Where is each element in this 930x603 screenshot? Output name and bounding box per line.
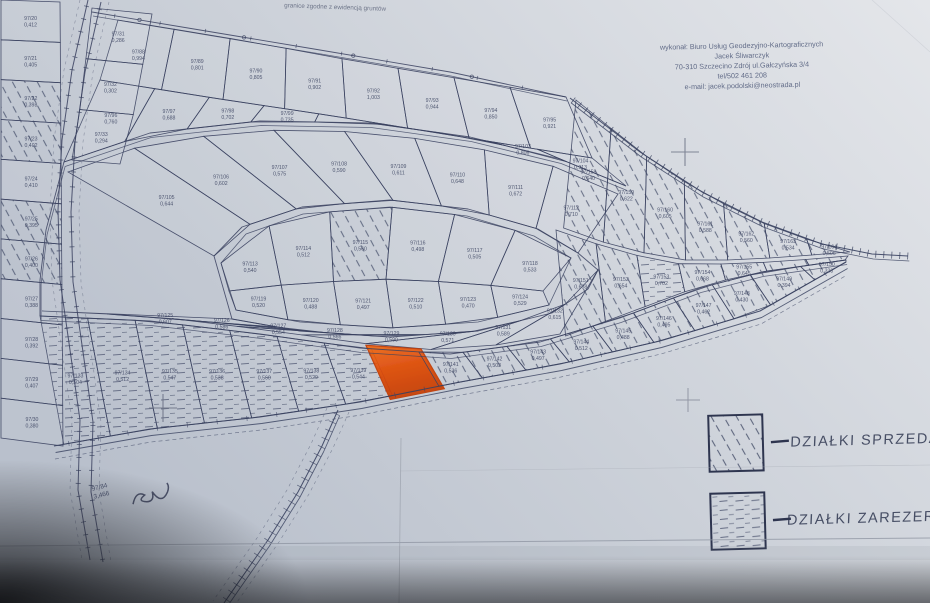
- parcel-id: 97/162: [738, 231, 754, 237]
- parcel-area: 0,806: [516, 151, 529, 157]
- parcel-area: 0,611: [392, 171, 405, 177]
- parcel-area: 0,470: [462, 304, 475, 310]
- parcel-id: 97/111: [508, 185, 523, 191]
- parcel-area: 0,512: [297, 253, 310, 259]
- parcel-id: 97/31: [112, 31, 125, 37]
- parcel-area: 0,462: [697, 310, 710, 316]
- parcel-id: 97/161: [697, 221, 713, 227]
- parcel-id: 97/160: [657, 208, 673, 214]
- parcel-area: 0,589: [497, 331, 510, 337]
- parcel-area: 0,850: [484, 114, 497, 120]
- parcel-area: 0,994: [132, 56, 145, 62]
- parcel-id: 97/152: [613, 277, 629, 283]
- parcel-id: 97/128: [327, 328, 343, 334]
- parcel-area: 0,702: [655, 281, 668, 287]
- parcel-id: 97/88: [132, 50, 145, 56]
- parcel-area: 0,654: [614, 283, 627, 289]
- parcel-id: 97/147: [696, 303, 712, 309]
- parcel-id: 97/25: [25, 217, 38, 223]
- parcel-area: 0,495: [657, 322, 670, 328]
- parcel-area: 0,430: [735, 297, 748, 303]
- parcel-id: 97/108: [331, 161, 347, 167]
- parcel-area: 0,902: [308, 85, 321, 91]
- parcel-id: 97/155: [736, 264, 752, 270]
- parcel-area: 0,286: [112, 38, 125, 44]
- legend-dash: [771, 441, 789, 442]
- parcel-area: 0,534: [782, 245, 795, 251]
- parcel-id: 97/99: [281, 111, 294, 117]
- parcel-id: 97/112: [564, 205, 580, 211]
- parcel-id: 97/158: [581, 170, 597, 176]
- parcel-id: 97/89: [191, 59, 204, 65]
- parcel-id: 97/149: [776, 277, 792, 283]
- parcel-area: 0,801: [191, 66, 204, 72]
- parcel-id: 97/28: [25, 337, 38, 343]
- parcel-id: 97/32: [104, 82, 117, 88]
- parcel-id: 97/95: [543, 118, 556, 124]
- legend-reserved-swatch: [710, 492, 765, 549]
- parcel-id: 97/113: [242, 261, 258, 267]
- parcel-id: 97/105: [159, 195, 175, 201]
- parcel-area: 0,644: [160, 202, 173, 208]
- parcel-id: 97/124: [512, 295, 528, 301]
- parcel-area: 0,294: [95, 139, 108, 145]
- parcel-area: 0,622: [620, 196, 633, 202]
- parcel-id: 97/131: [495, 325, 511, 331]
- parcel-id: 97/104: [573, 159, 589, 165]
- parcel-area: 0,388: [25, 303, 38, 309]
- parcel-area: 0,533: [523, 268, 536, 274]
- parcel-id: 97/91: [308, 78, 321, 84]
- parcel-area: 0,488: [304, 304, 317, 310]
- parcel-area: 0,338: [820, 269, 833, 275]
- parcel-id: 97/106: [213, 174, 229, 180]
- parcel-id: 97/22: [24, 96, 37, 102]
- parcel-id: 97/132: [547, 308, 563, 314]
- parcel-id: 97/121: [355, 298, 371, 304]
- parcel-area: 0,510: [409, 305, 422, 311]
- parcel-area: 0,402: [24, 143, 37, 149]
- parcel-id: 97/127: [270, 323, 286, 329]
- parcel-id: 97/151: [573, 278, 589, 284]
- parcel-area: 1,003: [367, 95, 380, 101]
- parcel-id: 97/33: [95, 132, 108, 138]
- parcel-area: 0,497: [357, 305, 370, 311]
- parcel-id: 97/103: [515, 144, 531, 150]
- cadastral-map-canvas: 97/880,99497/890,80197/900,80597/910,902…: [0, 0, 930, 603]
- parcel-id: 97/92: [367, 88, 380, 94]
- parcel-id: 97/144: [573, 340, 589, 346]
- parcel-id: 97/154: [695, 270, 711, 276]
- parcel-area: 0,398: [24, 103, 37, 109]
- parcel-id: 97/122: [408, 298, 424, 304]
- parcel-id: 97/20: [24, 16, 37, 22]
- parcel-area: 0,488: [617, 335, 630, 341]
- parcel-area: 0,688: [574, 284, 587, 290]
- parcel-area: 0,602: [215, 181, 228, 187]
- parcel-id: 97/117: [467, 248, 483, 254]
- parcel-id: 97/115: [353, 240, 369, 246]
- parcel-id: 97/129: [383, 331, 399, 337]
- surveyor-info: wykonał: Biuro Usług Geodezyjno-Kartogra…: [659, 39, 824, 91]
- parcel-area: 0,554: [272, 330, 285, 336]
- parcel-area: 0,302: [104, 88, 117, 94]
- parcel-id: 97/98: [221, 108, 234, 114]
- parcel-id: 97/150: [819, 262, 835, 268]
- parcel-id: 97/107: [272, 165, 288, 171]
- parcel-area: 0,506: [823, 251, 836, 257]
- parcel-id: 97/97: [162, 109, 175, 115]
- parcel-area: 0,520: [252, 303, 265, 309]
- parcel-area: 0,540: [244, 268, 257, 274]
- parcel-area: 0,412: [24, 23, 37, 29]
- parcel-area: 0,648: [451, 179, 464, 185]
- parcel-id: 97/93: [426, 98, 439, 104]
- parcel-id: 97/164: [821, 245, 837, 251]
- parcel-id: 97/159: [618, 190, 634, 196]
- parcel-id: 97/109: [391, 164, 407, 170]
- parcel-id: 97/110: [450, 172, 466, 178]
- parcel-area: 0,575: [273, 171, 286, 177]
- parcel-id: 97/96: [104, 113, 117, 119]
- parcel-area: 0,735: [281, 117, 294, 123]
- parcel-area: 0,410: [25, 183, 38, 189]
- parcel-area: 0,805: [249, 75, 262, 81]
- parcel-id: 97/27: [25, 297, 38, 303]
- parcel-id: 97/24: [25, 176, 38, 182]
- parcel-area: 0,498: [411, 247, 424, 253]
- parcel-area: 0,566: [328, 334, 341, 340]
- parcel-area: 0,571: [441, 338, 454, 344]
- parcel-area: 0,605: [659, 214, 672, 220]
- parcel-id: 97/148: [734, 291, 750, 297]
- parcel-id: 97/21: [24, 56, 37, 62]
- parcel-id: 97/163: [780, 239, 796, 245]
- parcel-id: 97/123: [460, 297, 476, 303]
- parcel-area: 0,394: [778, 283, 791, 289]
- surveyor-line: tel/502 461 208: [717, 70, 767, 80]
- parcel-id: 97/145: [615, 328, 631, 334]
- parcel-area: 0,586: [215, 325, 228, 331]
- parcel-area: 0,615: [548, 315, 561, 321]
- parcel-id: 97/125: [157, 313, 173, 319]
- legend-sold-swatch: [708, 414, 763, 471]
- parcel-id: 97/146: [656, 316, 672, 322]
- parcel-area: 0,640: [582, 176, 595, 182]
- parcel-area: 0,760: [104, 120, 117, 126]
- parcel-id: 97/120: [303, 298, 319, 304]
- parcel-area: 0,529: [514, 301, 527, 307]
- parcel-area: 0,607: [159, 319, 172, 325]
- parcel-area: 0,588: [699, 228, 712, 234]
- parcel-area: 0,688: [162, 116, 175, 122]
- parcel-area: 0,672: [509, 191, 522, 197]
- parcel-id: 97/116: [410, 241, 426, 247]
- parcel-id: 97/119: [251, 296, 267, 302]
- parcel-area: 0,944: [426, 105, 439, 111]
- bottom-shadow: [0, 556, 930, 603]
- parcel-id: 97/153: [653, 274, 669, 280]
- parcel-area: 0,505: [468, 254, 481, 260]
- parcel-area: 0,560: [354, 246, 367, 252]
- parcel-area: 0,668: [696, 276, 709, 282]
- parcel-area: 0,710: [565, 212, 578, 218]
- parcel-area: 0,645: [738, 271, 751, 277]
- parcel-id: 97/130: [440, 331, 456, 337]
- parcel-id: 97/126: [214, 318, 230, 324]
- parcel-id: 97/118: [522, 261, 538, 267]
- parcel-area: 0,590: [385, 338, 398, 344]
- surveyor-line: Jacek Śliwarczyk: [714, 50, 769, 60]
- parcel-area: 0,921: [543, 124, 556, 130]
- parcel-area: 0,702: [221, 115, 234, 121]
- parcel-area: 0,512: [575, 346, 588, 352]
- parcel-id: 97/90: [249, 69, 262, 75]
- parcel-id: 97/23: [24, 136, 37, 142]
- parcel-id: 97/94: [484, 108, 497, 114]
- parcel-area: 0,405: [24, 63, 37, 69]
- parcel-area: 0,560: [740, 238, 753, 244]
- parcel-area: 0,395: [25, 223, 38, 229]
- parcel-area: 0,590: [333, 168, 346, 174]
- parcel-id: 97/26: [25, 257, 38, 263]
- parcel-id: 97/114: [296, 246, 312, 252]
- parcel-area: 0,400: [25, 263, 38, 269]
- map-photo: 97/880,99497/890,80197/900,80597/910,902…: [0, 0, 930, 603]
